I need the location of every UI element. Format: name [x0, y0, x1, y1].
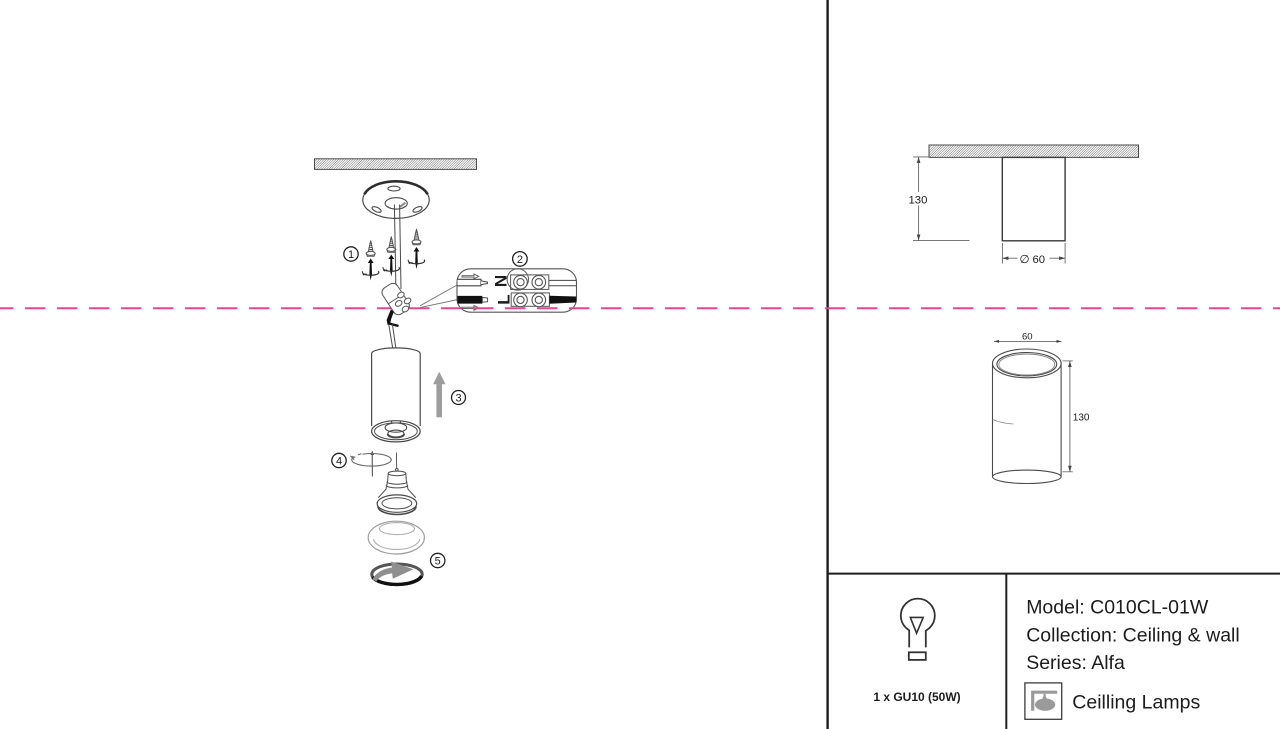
svg-text:L: L — [495, 294, 514, 304]
svg-text:60: 60 — [1022, 332, 1033, 343]
svg-text:N: N — [492, 275, 511, 287]
svg-text:Ceilling Lamps: Ceilling Lamps — [1072, 692, 1200, 714]
svg-text:Model: C010CL-01W: Model: C010CL-01W — [1026, 597, 1209, 619]
svg-text:1 x GU10 (50W): 1 x GU10 (50W) — [873, 690, 960, 704]
svg-text:130: 130 — [909, 195, 928, 207]
svg-text:5: 5 — [435, 555, 441, 567]
svg-text:4: 4 — [336, 455, 342, 467]
svg-text:3: 3 — [455, 392, 461, 404]
svg-text:2: 2 — [517, 254, 523, 266]
svg-text:130: 130 — [1073, 413, 1090, 424]
svg-text:∅ 60: ∅ 60 — [1020, 254, 1046, 266]
svg-text:Series: Alfa: Series: Alfa — [1026, 652, 1125, 674]
svg-text:Collection: Ceiling & wall: Collection: Ceiling & wall — [1026, 624, 1240, 646]
svg-text:1: 1 — [348, 249, 354, 261]
